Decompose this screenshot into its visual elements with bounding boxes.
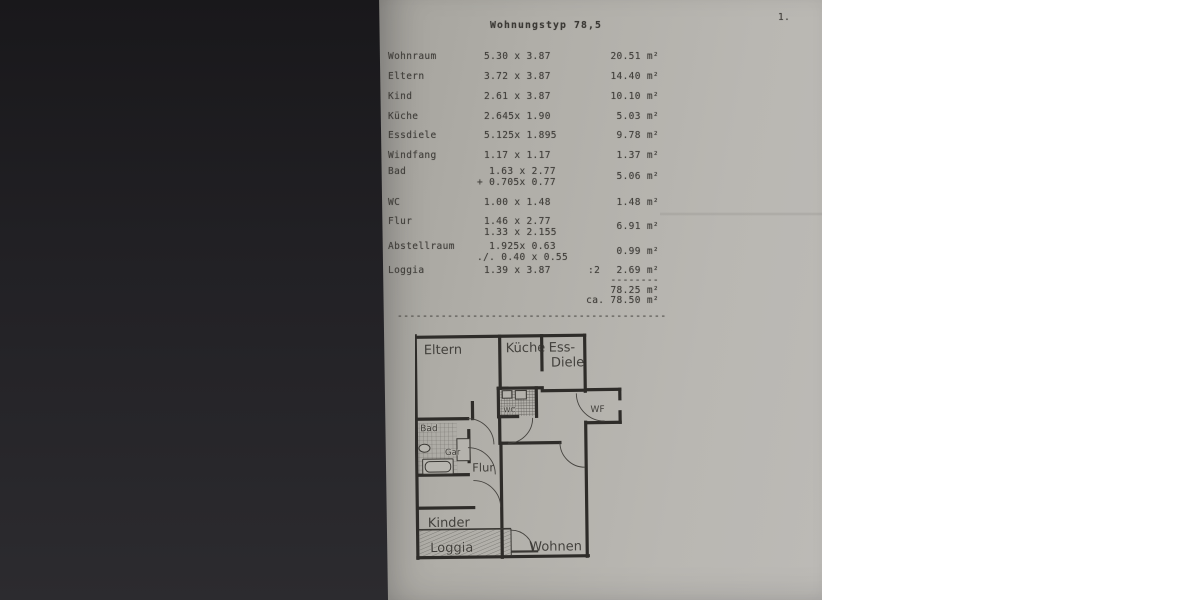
paper-crease [660,212,822,216]
room-label-wf: WF [590,405,604,415]
room-area: 1.48 m² [559,197,659,208]
room-name: Abstellraum [388,241,455,252]
dashed-separator: ----------------------------------------… [397,311,667,322]
room-name: Loggia [388,265,424,276]
total-area-approx: ca. 78.50 m² [539,295,659,306]
floor-plan-drawing: Eltern Küche Ess- Diele WC WF Bad Gar Fl… [415,330,630,570]
room-area: 9.78 m² [559,130,659,141]
room-dimensions-line2: ./. 0.40 x 0.55 [477,252,568,263]
room-dimensions: 2.61 x 3.87 [484,91,551,102]
screenshot-canvas: Wohnungstyp 78,5 1. Wohnraum 5.30 x 3.87… [0,0,1200,600]
room-label-flur: Flur [472,460,494,474]
room-area: 0.99 m² [559,246,659,257]
document-title: Wohnungstyp 78,5 [490,20,602,31]
washbasin [419,444,430,452]
table-row: Flur 1.46 x 2.77 1.33 x 2.155 6.91 m² [379,216,689,240]
room-dimensions-line2: 1.33 x 2.155 [484,227,557,238]
room-label-kinder: Kinder [428,516,471,532]
room-area: 6.91 m² [559,221,659,232]
room-area: 1.37 m² [559,150,659,161]
room-name: Eltern [388,71,424,82]
room-dimensions: 1.17 x 1.17 [484,150,551,161]
room-dimensions: 3.72 x 3.87 [484,71,551,82]
table-row: Bad 1.63 x 2.77 + 0.705x 0.77 5.06 m² [379,166,689,190]
room-label-loggia: Loggia [430,541,473,557]
room-label-diele: Diele [551,355,584,370]
room-name: Küche [388,111,418,122]
room-dimensions-line1: 1.63 x 2.77 [477,166,556,177]
room-name: Flur [388,216,412,227]
page-number: 1. [778,12,790,23]
room-area: 20.51 m² [559,51,659,62]
room-dimensions: 1.00 x 1.48 [484,197,551,208]
room-label-kueche: Küche [506,341,546,356]
room-name: WC [388,197,400,208]
room-area: 10.10 m² [559,91,659,102]
room-dimensions: 2.645x 1.90 [484,111,551,122]
room-name: Bad [388,166,406,177]
room-name: Essdiele [388,130,437,141]
room-name: Kind [388,91,412,102]
room-label-gar: Gar [445,448,461,458]
room-label-bad: Bad [420,424,438,434]
dark-table-surface [0,0,388,600]
wc-sink [515,390,526,399]
table-row: Abstellraum 1.925x 0.63 ./. 0.40 x 0.55 … [379,241,689,265]
room-dimensions-line2: + 0.705x 0.77 [477,177,556,188]
room-area: 14.40 m² [559,71,659,82]
room-label-wc: WC [503,406,515,414]
room-dimensions: 5.30 x 3.87 [484,51,551,62]
wc-toilet [502,391,512,399]
room-dimensions: 1.39 x 3.87 [484,265,551,276]
room-dimensions-line1: 1.46 x 2.77 [484,216,551,227]
room-label-eltern: Eltern [424,343,462,358]
room-area: 5.03 m² [559,111,659,122]
room-dimensions-line1: 1.925x 0.63 [477,241,556,252]
room-name: Windfang [388,150,437,161]
room-label-wohnen: Wohnen [529,539,582,555]
room-name: Wohnraum [388,51,437,62]
document-paper: Wohnungstyp 78,5 1. Wohnraum 5.30 x 3.87… [379,0,822,600]
room-label-ess: Ess- [549,340,576,355]
room-area: 5.06 m² [559,171,659,182]
room-dimensions: 5.125x 1.895 [484,130,557,141]
